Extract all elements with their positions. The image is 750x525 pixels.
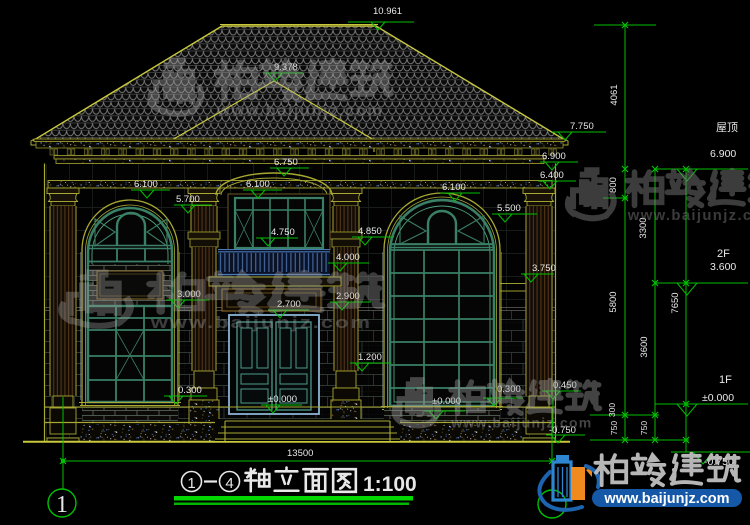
svg-text:10.961: 10.961	[373, 6, 402, 17]
svg-text:800: 800	[608, 177, 619, 193]
svg-text:7650: 7650	[670, 292, 681, 313]
svg-text:屋顶: 屋顶	[716, 121, 738, 134]
svg-text:6.100: 6.100	[134, 179, 158, 190]
svg-text:5.700: 5.700	[176, 194, 200, 205]
svg-text:7.750: 7.750	[570, 121, 594, 132]
svg-text:6.400: 6.400	[540, 170, 564, 181]
svg-text:1: 1	[56, 492, 68, 518]
svg-text:4: 4	[225, 475, 233, 492]
svg-text:www.baijunjz.com: www.baijunjz.com	[150, 314, 372, 333]
svg-text:750: 750	[639, 421, 649, 435]
svg-text:1F: 1F	[719, 374, 732, 386]
svg-text:6.100: 6.100	[246, 179, 270, 190]
svg-text:0.300: 0.300	[178, 385, 202, 396]
svg-text:5.500: 5.500	[497, 203, 521, 214]
svg-text:1: 1	[187, 475, 195, 492]
svg-text:750: 750	[609, 421, 619, 435]
svg-text:www.baijunjz.com: www.baijunjz.com	[627, 208, 750, 224]
svg-text:4.750: 4.750	[271, 227, 295, 238]
svg-text:www.baijunjz.com: www.baijunjz.com	[216, 102, 383, 120]
svg-text:6.100: 6.100	[442, 182, 466, 193]
svg-text:6.750: 6.750	[274, 157, 298, 168]
svg-text:6.900: 6.900	[542, 151, 566, 162]
svg-text:4.850: 4.850	[358, 226, 382, 237]
svg-text:4.000: 4.000	[336, 252, 360, 263]
svg-text:1.200: 1.200	[358, 352, 382, 363]
svg-text:2F: 2F	[717, 248, 730, 260]
svg-text:300: 300	[607, 403, 617, 417]
svg-text:www.baijunjz.com: www.baijunjz.com	[603, 491, 729, 507]
svg-text:3.600: 3.600	[710, 261, 736, 273]
svg-text:5800: 5800	[608, 291, 619, 312]
svg-text:1:100: 1:100	[363, 473, 417, 496]
svg-text:4061: 4061	[609, 84, 620, 105]
svg-text:www.baijunjz.com: www.baijunjz.com	[450, 414, 592, 430]
svg-text:6.900: 6.900	[710, 148, 736, 160]
svg-text:3.750: 3.750	[532, 263, 556, 274]
svg-text:±0.000: ±0.000	[268, 394, 297, 405]
svg-text:13500: 13500	[287, 448, 313, 459]
svg-text:±0.000: ±0.000	[702, 392, 734, 404]
svg-text:3600: 3600	[639, 336, 650, 357]
